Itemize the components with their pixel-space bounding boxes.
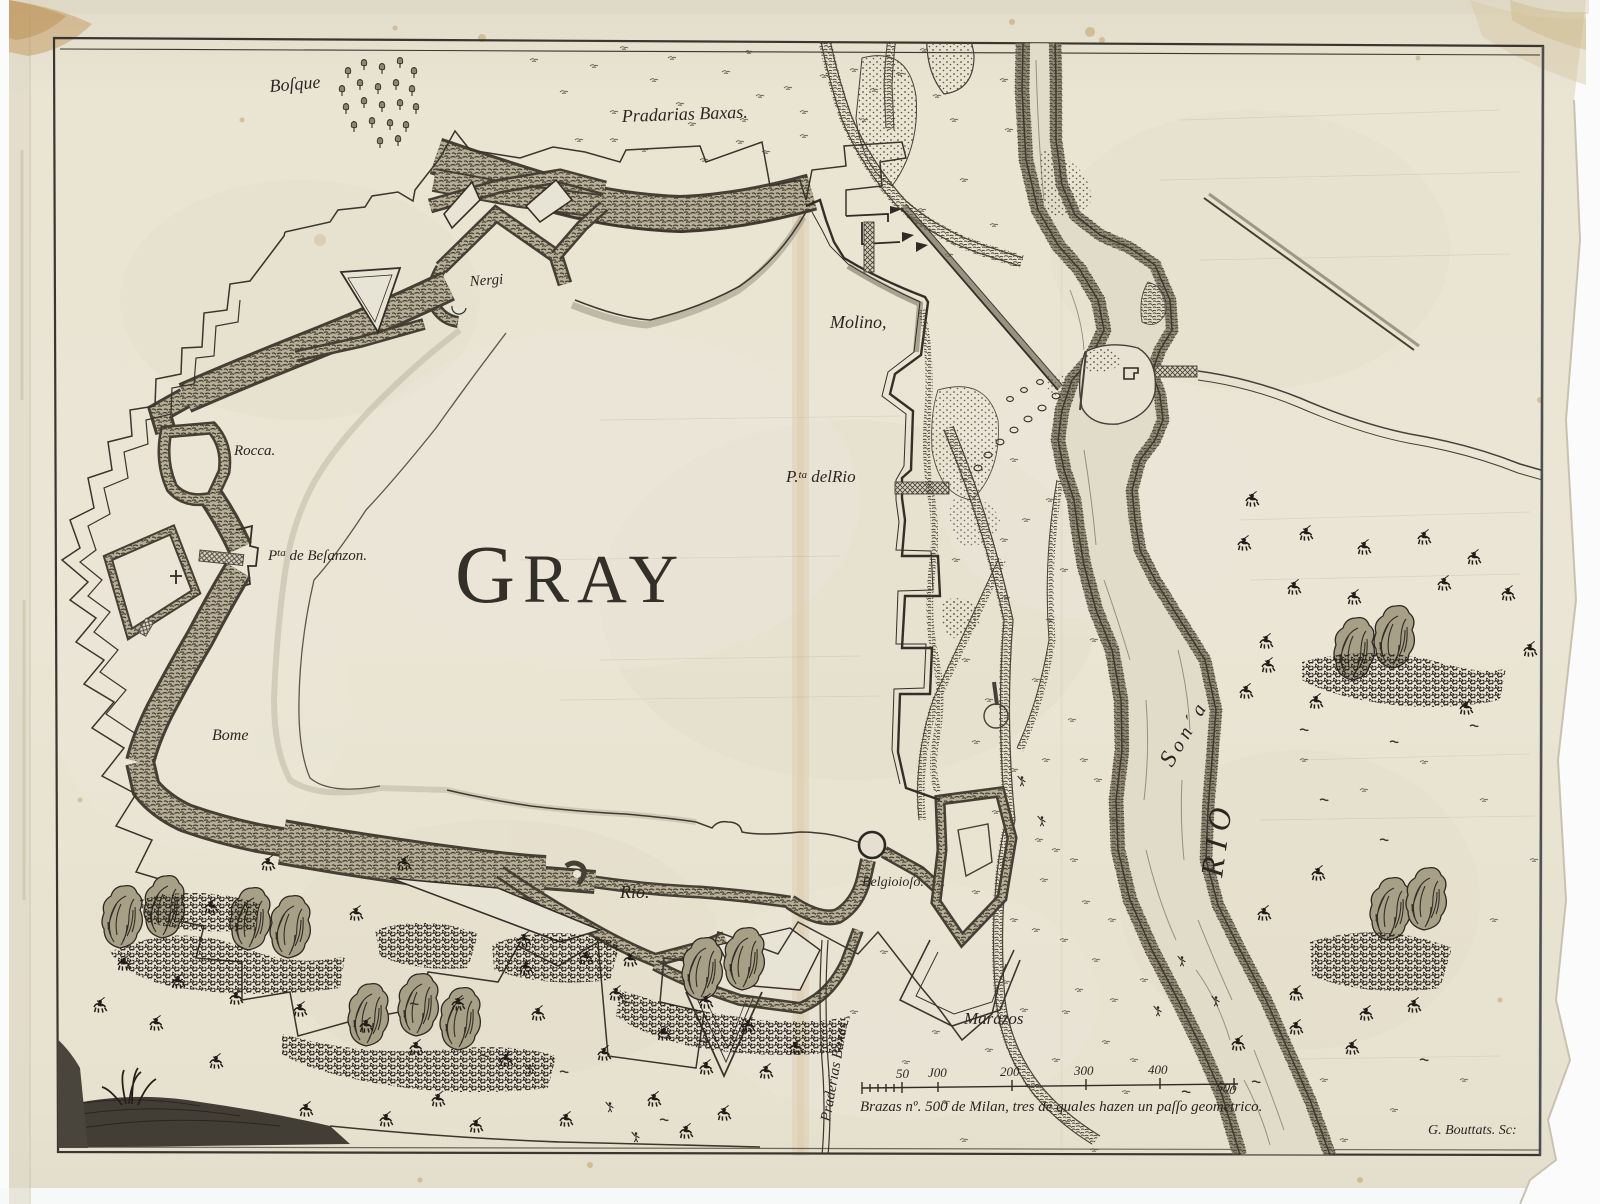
svg-text:Nergi: Nergi — [468, 272, 504, 290]
svg-text:300: 300 — [1073, 1063, 1094, 1078]
svg-text:Belgioioſo.: Belgioioſo. — [862, 875, 924, 890]
svg-text:GRAY: GRAY — [455, 528, 686, 620]
svg-text:Brazas nº. 500 de Milan, tres: Brazas nº. 500 de Milan, tres de quales … — [860, 1099, 1262, 1115]
svg-text:50: 50 — [896, 1066, 910, 1081]
svg-text:200: 200 — [1000, 1064, 1020, 1079]
svg-text:Molino,: Molino, — [829, 312, 887, 332]
svg-text:Rocca.: Rocca. — [233, 443, 275, 459]
svg-text:Marazos: Marazos — [963, 1009, 1024, 1028]
svg-text:J00: J00 — [928, 1065, 947, 1080]
svg-text:400: 400 — [1148, 1062, 1168, 1077]
svg-text:Bome: Bome — [212, 727, 248, 744]
svg-text:P.ta delRio: P.ta delRio — [785, 467, 856, 486]
svg-text:Rio.: Rio. — [619, 882, 650, 902]
svg-text:G. Bouttats. Sc:: G. Bouttats. Sc: — [1428, 1123, 1517, 1138]
